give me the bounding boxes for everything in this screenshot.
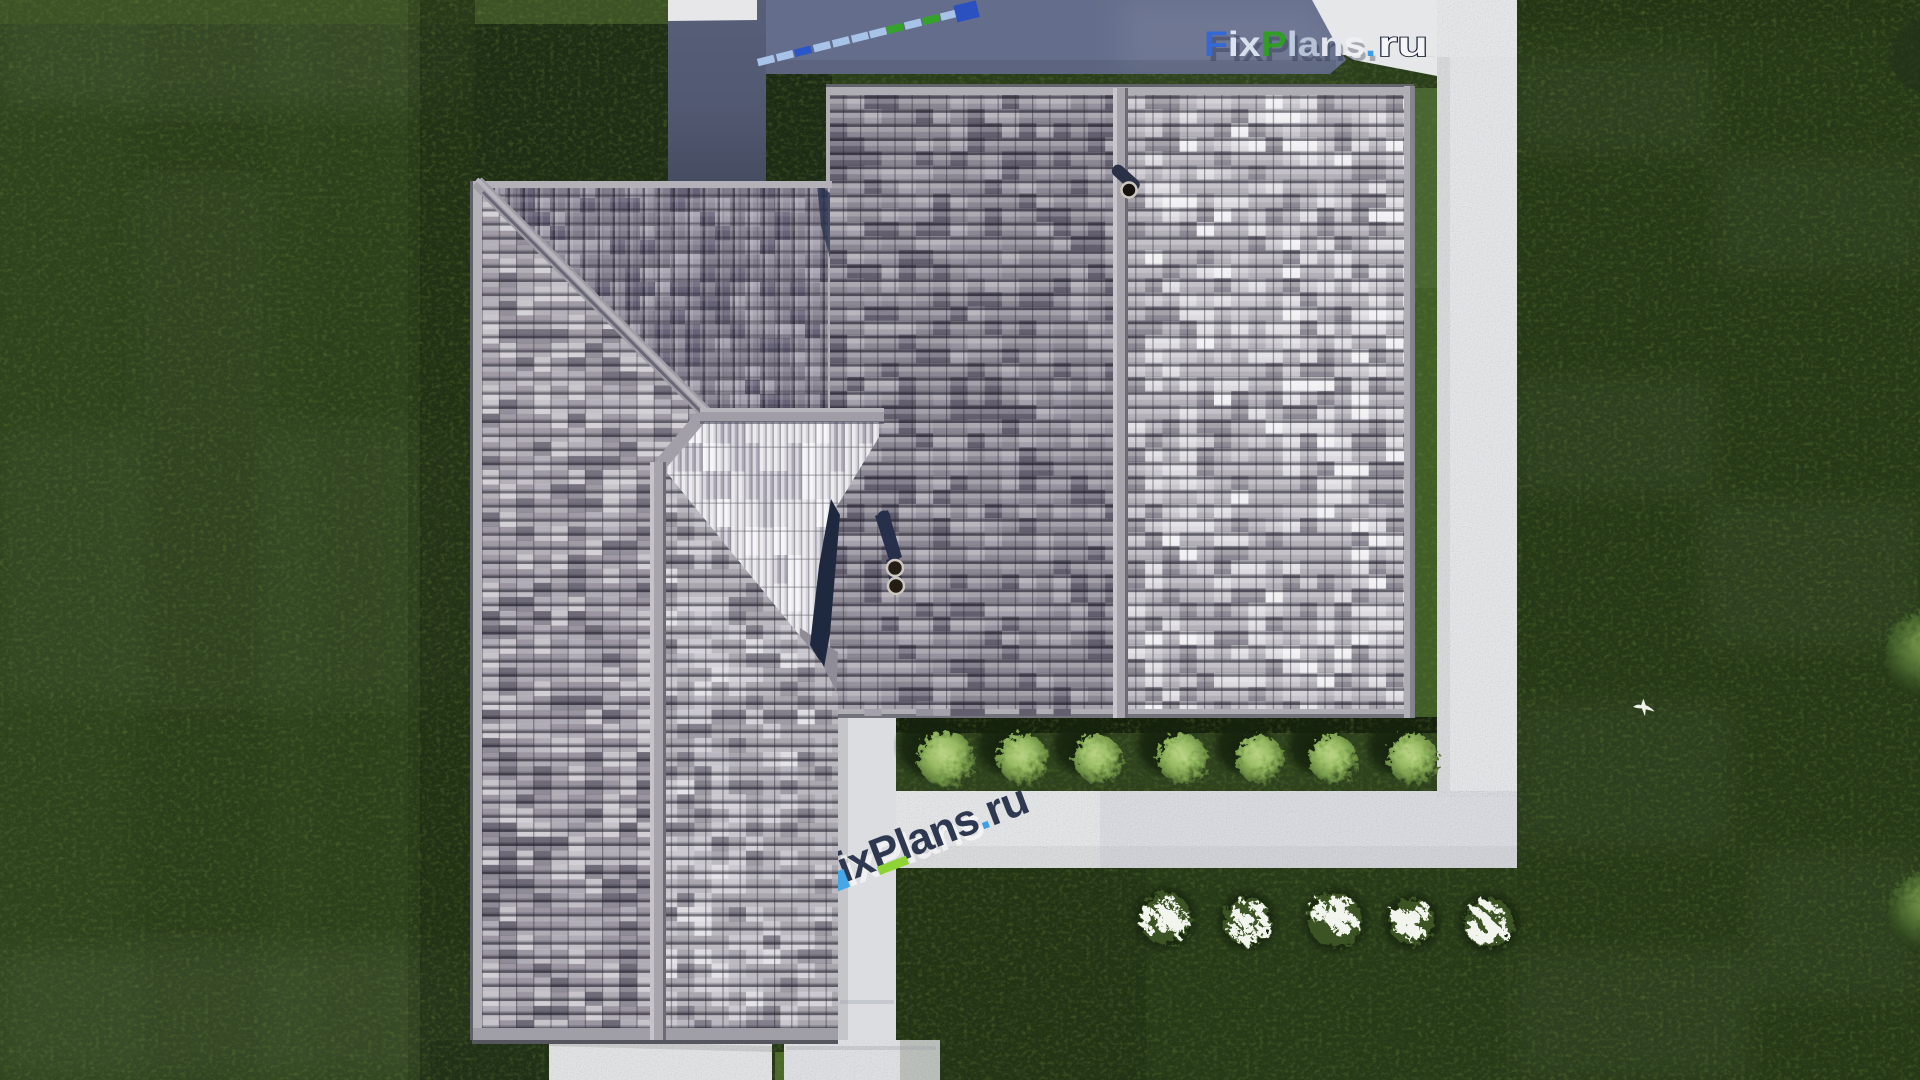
svg-text:FixPlans.: FixPlans.	[1204, 25, 1376, 64]
svg-text:ru: ru	[1378, 25, 1428, 64]
